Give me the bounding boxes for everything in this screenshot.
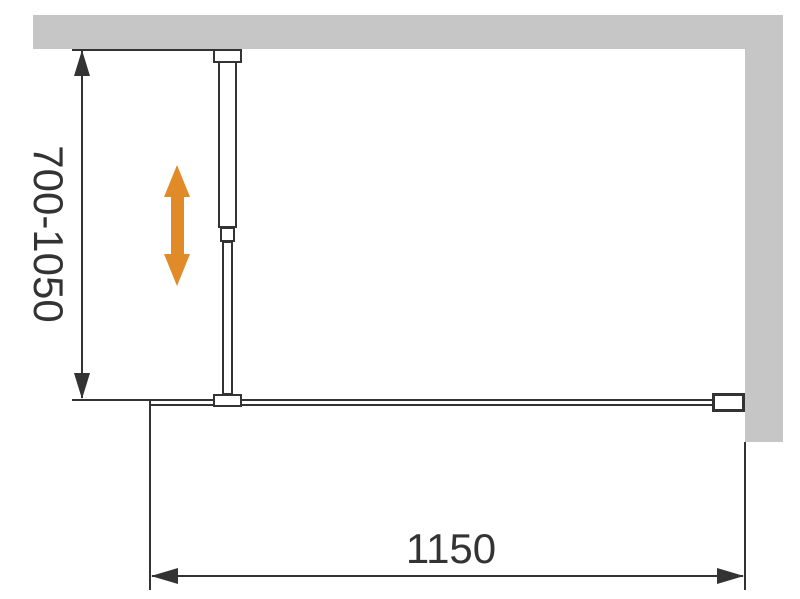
arrowhead-down-icon: [74, 373, 90, 399]
width-label: 1150: [351, 528, 551, 570]
width-dimension-extension-line-right: [744, 442, 746, 590]
adjust-arrow-shaft: [171, 196, 184, 255]
support-bar-upper-tube: [218, 61, 237, 228]
width-dimension-line: [152, 575, 743, 577]
height-dimension-line: [81, 51, 83, 398]
height-range-label: 700-1050: [26, 124, 70, 344]
glass-panel-top-edge: [72, 399, 712, 401]
glass-wall-profile-bracket: [712, 393, 745, 412]
support-bar-lower-tube: [222, 241, 233, 395]
height-dimension-extension-line: [72, 49, 213, 51]
support-bar-collar: [220, 227, 235, 242]
arrowhead-left-icon: [151, 568, 178, 584]
adjust-arrow-up-head: [164, 165, 190, 197]
arrowhead-right-icon: [717, 568, 744, 584]
installation-diagram: 700-1050 1150: [0, 0, 800, 599]
width-dimension-extension-line-left: [149, 400, 151, 590]
adjust-arrow-down-head: [164, 254, 190, 286]
support-bar-ceiling-bracket: [213, 49, 242, 63]
support-bar-glass-clamp: [213, 394, 242, 407]
wall-right: [745, 15, 783, 442]
wall-top: [33, 15, 783, 49]
arrowhead-up-icon: [74, 50, 90, 76]
